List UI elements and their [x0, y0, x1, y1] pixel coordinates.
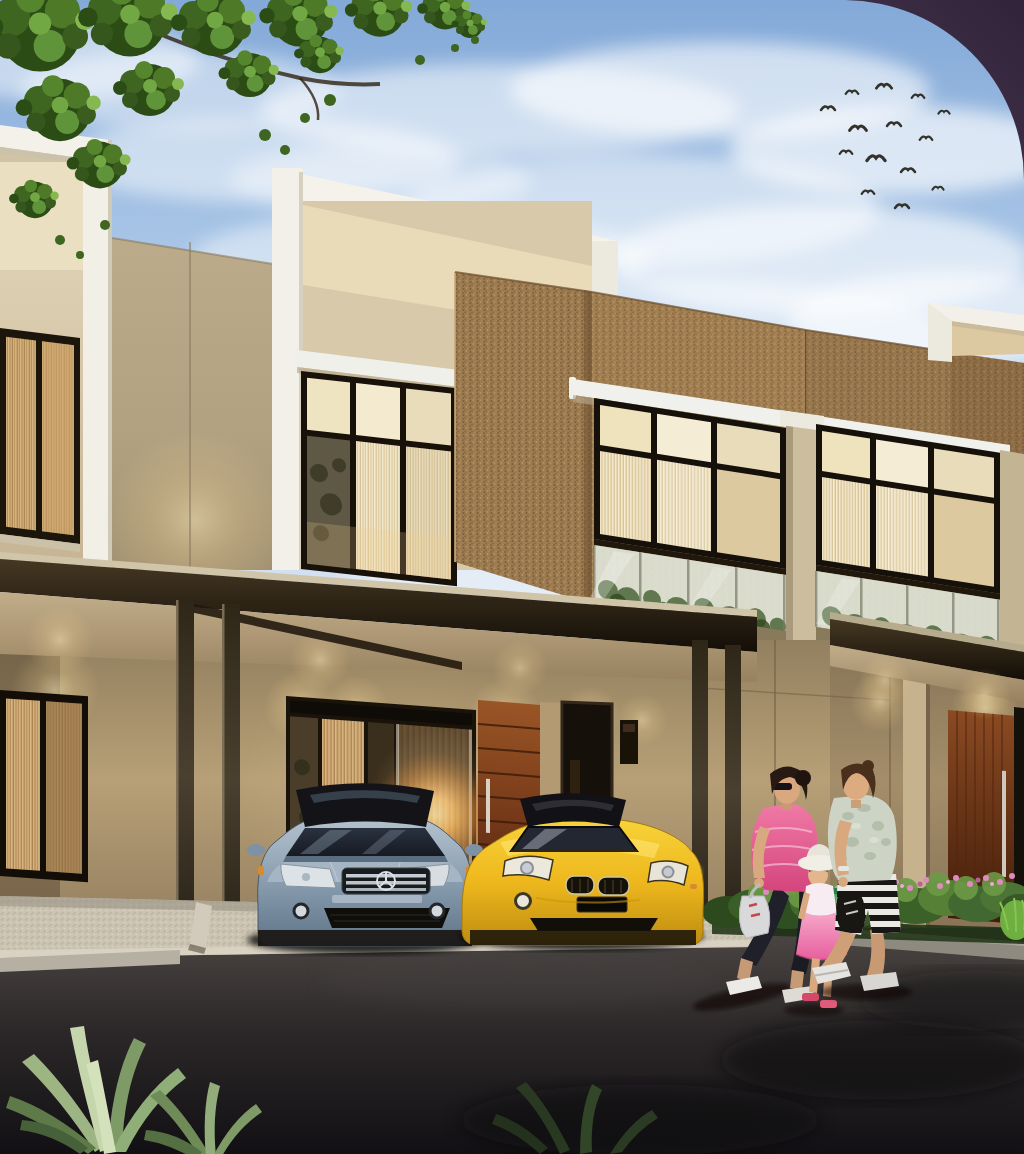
left-ground-window [0, 690, 88, 882]
architectural-rendering [0, 0, 1024, 1154]
plate-recess [332, 895, 422, 903]
fog-light [516, 894, 531, 909]
door-pull-handle [486, 779, 490, 833]
door-pull-handle [1002, 771, 1006, 877]
fog-light [294, 904, 308, 918]
left-upper-window [0, 328, 80, 552]
rendering-viewport [0, 0, 1024, 1154]
fog-light [430, 904, 444, 918]
sedan-roof [296, 783, 434, 827]
license-plate [577, 897, 627, 912]
center-unit-window [301, 371, 457, 586]
hand-bag [739, 896, 770, 938]
side-mirror [247, 844, 265, 856]
